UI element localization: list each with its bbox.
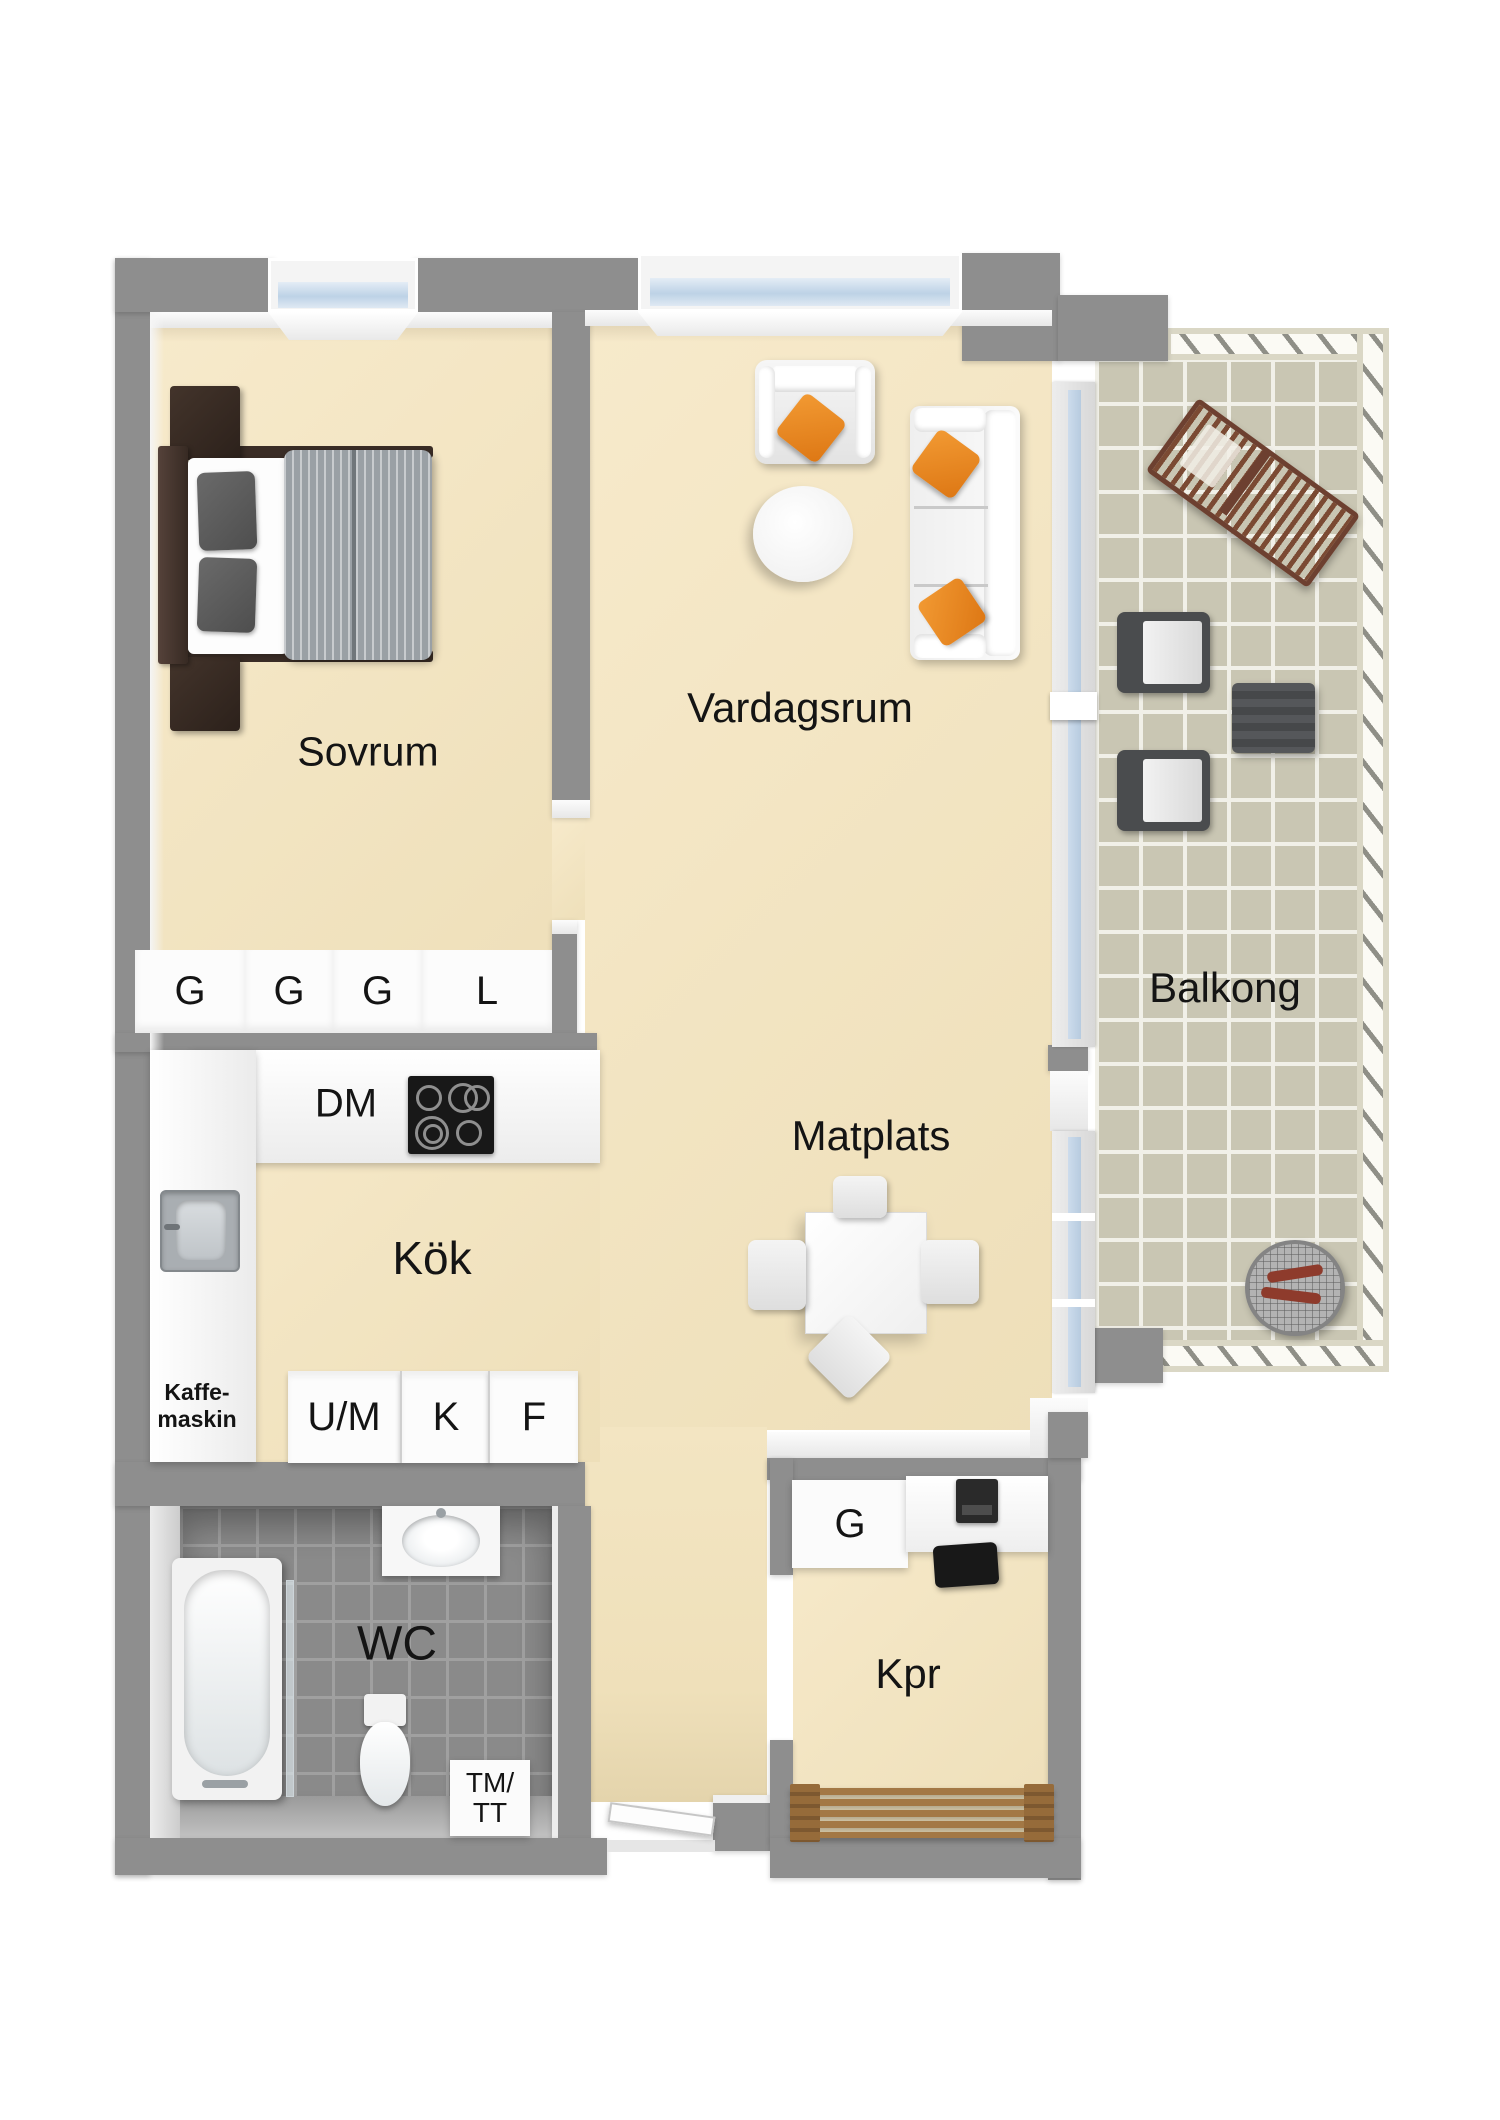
dining-window-glass — [1068, 1137, 1081, 1387]
wardrobe-cell-g1: G — [135, 950, 247, 1033]
wardrobe-cell-g2: G — [245, 950, 335, 1033]
wall-dining-corner-block — [1048, 1412, 1088, 1458]
wardrobe-cell-l: L — [422, 950, 552, 1033]
shower-screen — [286, 1580, 294, 1797]
wall-top-bedroom-left — [115, 258, 275, 312]
kitchen-unit-k: K — [400, 1371, 490, 1463]
armchair-back — [771, 366, 859, 392]
stove-burner — [464, 1085, 490, 1111]
toilet — [360, 1694, 410, 1810]
washer-dryer-label: TM/ TT — [466, 1768, 514, 1828]
coffee-machine-line2: maskin — [157, 1406, 236, 1433]
balcony-label: Balkong — [1149, 964, 1301, 1012]
kpr-desk-chair — [933, 1542, 1000, 1588]
toilet-bowl — [360, 1722, 410, 1806]
kpr-wardrobe-label: G — [834, 1502, 865, 1547]
wc-sink-counter — [382, 1506, 500, 1576]
kpr-printer-top — [962, 1505, 992, 1515]
balcony-door-handle — [1050, 692, 1097, 720]
balcony-table — [1232, 683, 1315, 753]
kitchen-unit-label: U/M — [307, 1395, 380, 1440]
coffee-machine-line1: Kaffe- — [157, 1379, 236, 1406]
balcony-railing-top — [1165, 328, 1387, 360]
kpr-bench-support — [790, 1784, 820, 1842]
wall-stub-cap — [552, 920, 577, 934]
kpr-bench — [790, 1788, 1054, 1838]
balcony-chair-2 — [1117, 750, 1210, 831]
balcony-door-frame — [1052, 382, 1095, 1047]
balcony-chair-cushion — [1143, 621, 1202, 684]
bathroom-label: WC — [357, 1617, 437, 1672]
grill — [1245, 1240, 1345, 1336]
wall-bedroom-living-divider — [552, 312, 590, 817]
kitchen-sink — [160, 1190, 240, 1272]
dining-chair-top — [833, 1176, 887, 1218]
bathtub-basin — [184, 1570, 270, 1776]
kpr-bench-support — [1024, 1784, 1054, 1842]
kitchen-label: Kök — [392, 1231, 471, 1285]
stove-burner-inner-ring — [423, 1124, 443, 1144]
bedroom-window-glass — [278, 282, 408, 308]
entry-door-leaf — [608, 1802, 716, 1837]
bed-duvet — [284, 450, 432, 660]
wardrobe-label: G — [174, 969, 205, 1014]
wardrobe-label: G — [273, 969, 304, 1014]
wall-balcony-top-block — [1058, 295, 1168, 361]
living-room-label: Vardagsrum — [687, 684, 913, 732]
floor-plan: G G G L U/M K F TM/ TT — [0, 0, 1500, 2120]
dining-table — [805, 1212, 927, 1334]
bed-duvet-fold — [352, 450, 356, 660]
entry-door-threshold — [607, 1840, 715, 1852]
sofa-seat-divider — [914, 506, 988, 509]
bedroom-west-face — [150, 312, 164, 1050]
stove-burner — [456, 1120, 482, 1146]
grill-food — [1261, 1286, 1322, 1304]
washer-dryer-unit: TM/ TT — [450, 1760, 530, 1836]
kitchen-unit-label: F — [522, 1395, 546, 1440]
coffee-machine-label: Kaffe- maskin — [157, 1379, 236, 1433]
living-window-sill — [638, 312, 962, 336]
wall-bottom-left — [115, 1838, 607, 1875]
bedroom-window — [268, 258, 418, 312]
sofa-backrest — [984, 410, 1016, 656]
wall-top-middle — [413, 258, 638, 312]
washer-dryer-line1: TM/ — [466, 1768, 514, 1798]
grill-food — [1266, 1264, 1323, 1284]
dining-window-frame — [1052, 1131, 1095, 1393]
nightstand-bottom — [170, 657, 240, 731]
kitchen-unit-label: K — [433, 1395, 460, 1440]
stove-burner — [415, 1116, 449, 1150]
closet-room-label: Kpr — [875, 1650, 940, 1698]
balcony-railing-right — [1357, 328, 1389, 1372]
wall-divider-end-cap — [552, 800, 590, 818]
dining-window-mullion — [1052, 1299, 1095, 1307]
kitchen-unit-um: U/M — [288, 1371, 400, 1463]
wardrobe-cell-g3: G — [333, 950, 424, 1033]
wall-wc-north — [115, 1462, 585, 1506]
stove-burner — [416, 1085, 442, 1111]
dining-window-mullion — [1052, 1213, 1095, 1221]
sofa-armrest — [914, 408, 986, 432]
kpr-wardrobe: G — [792, 1480, 908, 1568]
wall-dining-east-block — [1048, 1045, 1088, 1071]
kitchen-faucet — [164, 1224, 180, 1230]
bathtub-faucet — [202, 1780, 248, 1788]
balcony-chair-cushion — [1143, 759, 1202, 822]
wall-kpr-west-upper — [770, 1458, 793, 1575]
bed-pillow — [197, 471, 258, 551]
wc-sink-basin — [402, 1515, 480, 1567]
balcony-chair-1 — [1117, 612, 1210, 693]
bathtub — [172, 1558, 282, 1800]
washer-dryer-line2: TT — [466, 1798, 514, 1828]
wc-sink-faucet — [436, 1508, 446, 1518]
wall-wc-east — [552, 1506, 591, 1838]
hallway-floor — [585, 1427, 767, 1802]
armchair-arm — [759, 366, 775, 458]
dishwasher-label: DM — [315, 1082, 377, 1127]
lounge-chair-headrest — [1179, 423, 1242, 488]
bed-headboard — [158, 446, 188, 664]
living-window — [638, 253, 962, 312]
wardrobe-label: L — [476, 969, 498, 1014]
dining-chair-left — [748, 1240, 806, 1310]
wall-entry-right — [713, 1795, 770, 1851]
dining-label: Matplats — [792, 1112, 951, 1160]
kpr-printer — [956, 1479, 998, 1523]
living-window-glass — [650, 278, 950, 306]
coffee-table — [753, 486, 853, 582]
armchair-arm — [855, 366, 871, 458]
stove — [408, 1076, 494, 1154]
wardrobe-label: G — [362, 969, 393, 1014]
kitchen-sink-basin — [176, 1200, 226, 1260]
kitchen-unit-f: F — [488, 1371, 578, 1463]
dining-chair-right — [921, 1240, 979, 1304]
bedroom-window-sill — [268, 312, 418, 340]
wall-left-outer — [115, 258, 150, 1875]
wall-top-right — [962, 253, 1060, 361]
wall-dining-east-face — [1050, 1071, 1088, 1131]
bed-pillow — [197, 557, 258, 633]
bedroom-label: Sovrum — [297, 729, 438, 776]
wall-kpr-south — [770, 1838, 1081, 1878]
